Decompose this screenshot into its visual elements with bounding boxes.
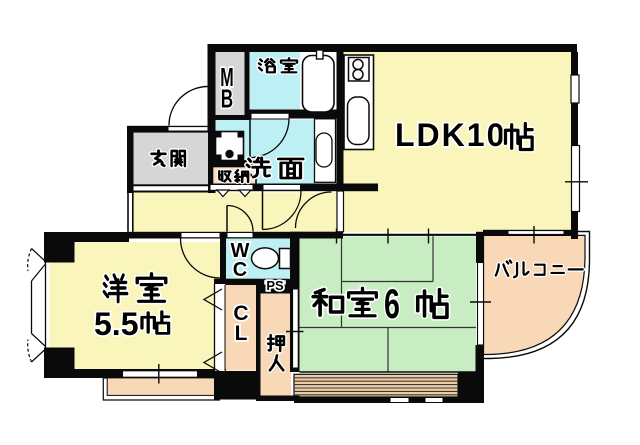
svg-text:5.5: 5.5 [94,306,138,342]
svg-text:B: B [221,84,233,114]
svg-text:LDK10: LDK10 [395,117,506,153]
svg-text:6: 6 [384,279,400,327]
svg-text:PS: PS [266,278,284,293]
svg-text:C: C [233,259,247,281]
svg-text:L: L [235,322,248,345]
